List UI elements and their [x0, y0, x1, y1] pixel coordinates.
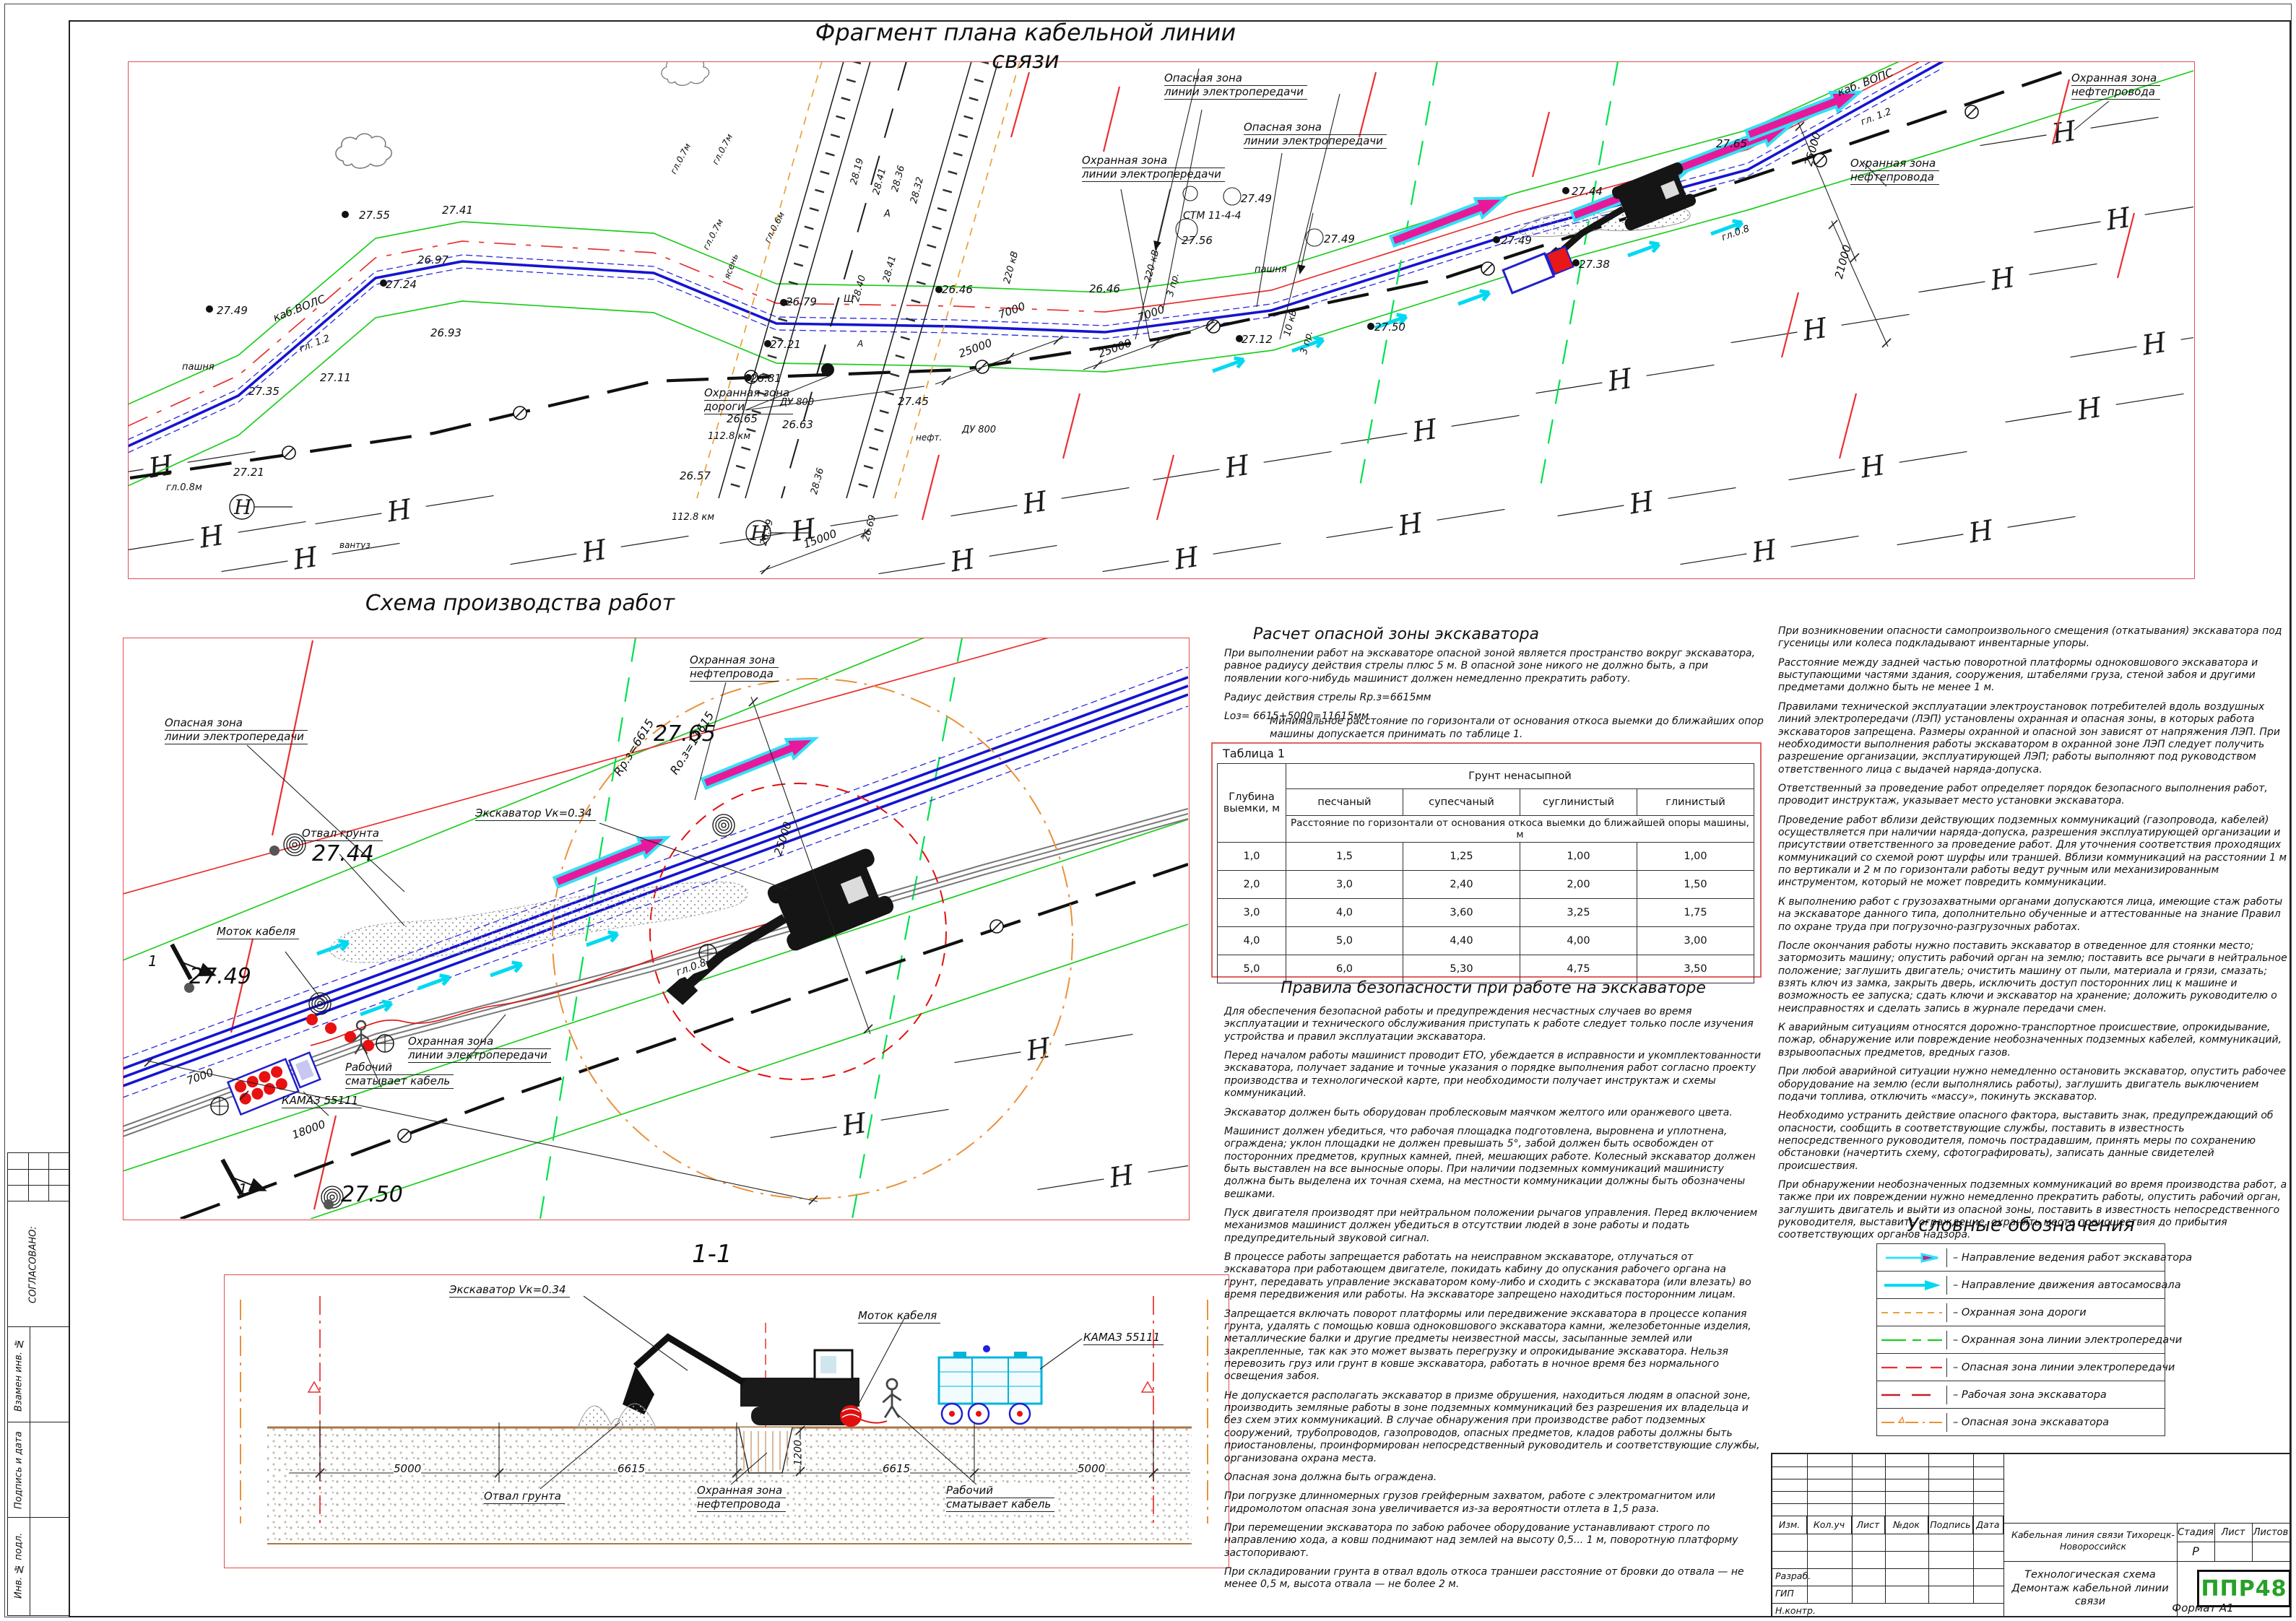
sidebar-line — [8, 1326, 69, 1327]
table-cell: 3,00 — [1637, 927, 1754, 955]
plan-border — [128, 61, 2195, 579]
stamp-header-cells: Изм.Кол.учЛист№докПодписьДата — [1772, 1516, 2003, 1534]
stamp-line — [2003, 1561, 2289, 1562]
stamp-col-header: Кол.уч — [1807, 1516, 1852, 1534]
safety-heading: Правила безопасности при работе на экска… — [1224, 979, 1762, 997]
work-dir-icon — [1877, 1248, 1947, 1267]
soil-type-header: глинистый — [1637, 789, 1754, 816]
stamp-line — [1772, 1603, 2003, 1604]
stamp-line — [1772, 1466, 2003, 1467]
paragraph: Расстояние между задней частью поворотно… — [1778, 657, 2288, 695]
table-cell: 1,25 — [1403, 843, 1520, 871]
stamp-line — [2003, 1454, 2004, 1616]
table-cell: 5,0 — [1286, 927, 1403, 955]
table-row: 4,05,04,404,003,00 — [1218, 927, 1754, 955]
stamp-col-header: №док — [1885, 1516, 1928, 1534]
safety-paragraphs: Для обеспечения безопасной работы и пред… — [1224, 1006, 1762, 1591]
table-cell: 3,25 — [1520, 899, 1637, 927]
stage-value: Р — [2177, 1542, 2214, 1561]
table-cell: 1,50 — [1637, 871, 1754, 899]
safety-rules-right: При возникновении опасности самопроизвол… — [1778, 625, 2288, 1248]
calc-paragraphs: При выполнении работ на экскаваторе опас… — [1224, 648, 1760, 723]
stamp-col-header: Подпись — [1928, 1516, 1973, 1534]
stamp-col-header: Дата — [1973, 1516, 2003, 1534]
calc-heading: Расчет опасной зоны экскаватора — [1253, 625, 1760, 643]
table-cell: 4,40 — [1403, 927, 1520, 955]
paragraph: При перемещении экскаватора по забою раб… — [1224, 1522, 1762, 1560]
table-caption: Таблица 1 — [1223, 747, 1760, 760]
paragraph: При погрузке длинномерных грузов грейфер… — [1224, 1490, 1762, 1516]
sidebar-line — [30, 1326, 30, 1615]
safety-rules: Правила безопасности при работе на экска… — [1224, 979, 1762, 1598]
paragraph: Проведение работ вблизи действующих подз… — [1778, 814, 2288, 890]
role-gip: ГИП — [1775, 1588, 1794, 1599]
table-body: 1,01,51,251,001,002,03,02,402,001,503,04… — [1218, 843, 1754, 983]
role-normcontrol: Н.контр. — [1775, 1605, 1816, 1616]
paragraph: Правилами технической эксплуатации элект… — [1778, 701, 2288, 776]
legend-row: – Охранная зона линии электропередачи — [1877, 1326, 2165, 1354]
stamp-line — [1772, 1534, 2003, 1534]
title-block: Изм.Кол.учЛист№докПодписьДата Разраб. ГИ… — [1771, 1453, 2291, 1617]
table-cell: 1,75 — [1637, 899, 1754, 927]
exc-danger-icon — [1877, 1413, 1947, 1432]
soil-type-header: суглинистый — [1520, 789, 1637, 816]
paragraph: Экскаватор должен быть оборудован пробле… — [1224, 1107, 1762, 1119]
stamp-line — [1772, 1491, 2003, 1492]
legend-row: – Охранная зона дороги — [1877, 1299, 2165, 1326]
legend-label: – Рабочая зона экскаватора — [1947, 1389, 2107, 1401]
paragraph: При складировании грунта в отвал вдоль о… — [1224, 1566, 1762, 1591]
legend-row: – Направление движения автосамосвала — [1877, 1272, 2165, 1299]
table-cell: 4,0 — [1218, 927, 1286, 955]
paragraph: К аварийным ситуациям относятся дорожно-… — [1778, 1022, 2288, 1059]
table-cell: 2,0 — [1218, 871, 1286, 899]
sidebar-line — [28, 1153, 29, 1201]
table-cell: 1,00 — [1520, 843, 1637, 871]
side-attribute-strip: СОГЛАСОВАНО: Взамен инв. № Подпись и дат… — [7, 1152, 70, 1616]
paragraph: Машинист должен убедиться, что рабочая п… — [1224, 1126, 1762, 1201]
stamp-line — [1772, 1568, 2003, 1569]
paragraph: Пуск двигателя производят при нейтрально… — [1224, 1207, 1762, 1245]
paragraph: Опасная зона должна быть ограждена. — [1224, 1472, 1762, 1484]
soil-type-header: супесчаный — [1403, 789, 1520, 816]
work-zone-icon — [1877, 1386, 1947, 1404]
inv-number-label: Инв. № подл. — [9, 1523, 28, 1608]
soil-type-header: песчаный — [1286, 789, 1403, 816]
sidebar-line — [8, 1185, 69, 1186]
table-row: 1,01,51,251,001,00 — [1218, 843, 1754, 871]
legend: Условные обозначения – Направление веден… — [1876, 1214, 2165, 1436]
stamp-col-header: Изм. — [1772, 1516, 1807, 1534]
paragraph: Перед началом работы машинист проводит Е… — [1224, 1050, 1762, 1100]
paragraph: Ответственный за проведение работ опреде… — [1778, 783, 2288, 808]
table-cell: 3,60 — [1403, 899, 1520, 927]
approved-label: СОГЛАСОВАНО: — [22, 1211, 44, 1319]
soil-header: Грунт ненасыпной — [1286, 764, 1754, 789]
scheme-title: Схема производства работ — [339, 591, 701, 616]
stamp-line — [1772, 1479, 2003, 1479]
section-border — [224, 1274, 1229, 1568]
stage-label: Стадия — [2177, 1523, 2214, 1542]
paragraph: При любой аварийной ситуации нужно немед… — [1778, 1066, 2288, 1103]
legend-row: – Опасная зона линии электропередачи — [1877, 1354, 2165, 1381]
company-logo: ППР48 — [2201, 1576, 2287, 1602]
signature-date-label: Подпись и дата — [9, 1427, 28, 1513]
distance-table-box: Таблица 1 Глубина выемки, м Грунт ненасы… — [1211, 742, 1762, 978]
legend-label: – Направление движения автосамосвала — [1947, 1279, 2181, 1291]
table-cell: 1,00 — [1637, 843, 1754, 871]
stamp-line — [1772, 1586, 2003, 1586]
legend-row: – Опасная зона экскаватора — [1877, 1409, 2165, 1435]
col-depth-header: Глубина выемки, м — [1218, 764, 1286, 843]
table-cell: 1,0 — [1218, 843, 1286, 871]
paragraph: После окончания работы нужно поставить э… — [1778, 940, 2288, 1015]
sheet-label: Лист — [2214, 1523, 2252, 1542]
paragraph: При выполнении работ на экскаваторе опас… — [1224, 648, 1760, 685]
legend-label: – Направление ведения работ экскаватора — [1947, 1252, 2192, 1264]
legend-row: – Направление ведения работ экскаватора — [1877, 1244, 2165, 1272]
scheme-border — [123, 638, 1190, 1220]
table-row: 3,04,03,603,251,75 — [1218, 899, 1754, 927]
format-note: Формат А1 — [2123, 1602, 2282, 1615]
table-cell: 3,0 — [1218, 899, 1286, 927]
paragraph: Запрещается включать поворот платформы и… — [1224, 1308, 1762, 1383]
paragraph: Необходимо устранить действие опасного ф… — [1778, 1110, 2288, 1173]
sidebar-line — [8, 1517, 69, 1518]
table-cell: 3,0 — [1286, 871, 1403, 899]
legend-label: – Охранная зона дороги — [1947, 1307, 2087, 1318]
table-row: 2,03,02,402,001,50 — [1218, 871, 1754, 899]
paragraph: К выполнению работ с грузозахватными орг… — [1778, 896, 2288, 934]
legend-label: – Опасная зона экскаватора — [1947, 1417, 2109, 1428]
paragraph: Радиус действия стрелы Rр.з=6615мм — [1224, 692, 1760, 704]
drawing-sheet: H H — [0, 0, 2296, 1621]
paragraph: В процессе работы запрещается работать н… — [1224, 1251, 1762, 1301]
sidebar-line — [8, 1422, 69, 1422]
table-cell: 2,00 — [1520, 871, 1637, 899]
sheets-label: Листов — [2252, 1523, 2289, 1542]
sidebar-line — [48, 1153, 49, 1201]
paragraph: Для обеспечения безопасной работы и пред… — [1224, 1006, 1762, 1043]
document-name: Кабельная линия связи Тихорецк-Новоросси… — [2005, 1524, 2181, 1558]
paragraph: Не допускается располагать экскаватор в … — [1224, 1390, 1762, 1465]
lep-guard-icon — [1877, 1331, 1947, 1350]
legend-label: – Охранная зона линии электропередачи — [1947, 1334, 2182, 1346]
legend-row: – Рабочая зона экскаватора — [1877, 1381, 2165, 1409]
sheet-title: Фрагмент плана кабельной линии связи — [802, 19, 1249, 74]
stamp-line — [1772, 1551, 2003, 1552]
role-developer: Разраб. — [1775, 1570, 1811, 1581]
table-note: Минимальное расстояние по горизонтали от… — [1270, 715, 1768, 741]
stamp-line — [1772, 1503, 2003, 1504]
road-guard-icon — [1877, 1303, 1947, 1322]
legend-box: – Направление ведения работ экскаватора–… — [1876, 1243, 2165, 1436]
lep-danger-icon — [1877, 1358, 1947, 1377]
dump-dir-icon — [1877, 1276, 1947, 1295]
table-cell: 2,40 — [1403, 871, 1520, 899]
legend-title: Условные обозначения — [1876, 1214, 2165, 1236]
table-cell: 1,5 — [1286, 843, 1403, 871]
soil-type-row: песчаныйсупесчаныйсуглинистыйглинистый — [1218, 789, 1754, 816]
table-cell: 4,00 — [1520, 927, 1637, 955]
legend-label: – Опасная зона линии электропередачи — [1947, 1362, 2175, 1373]
distance-note-header: Расстояние по горизонтали от основания о… — [1286, 816, 1754, 843]
sidebar-line — [8, 1169, 69, 1170]
distance-table: Глубина выемки, м Грунт ненасыпной песча… — [1217, 763, 1754, 983]
table-cell: 4,0 — [1286, 899, 1403, 927]
replaced-inv-label: Взамен инв. № — [9, 1332, 28, 1417]
paragraph: При возникновении опасности самопроизвол… — [1778, 625, 2288, 651]
sidebar-line — [8, 1201, 69, 1201]
stamp-col-header: Лист — [1852, 1516, 1885, 1534]
